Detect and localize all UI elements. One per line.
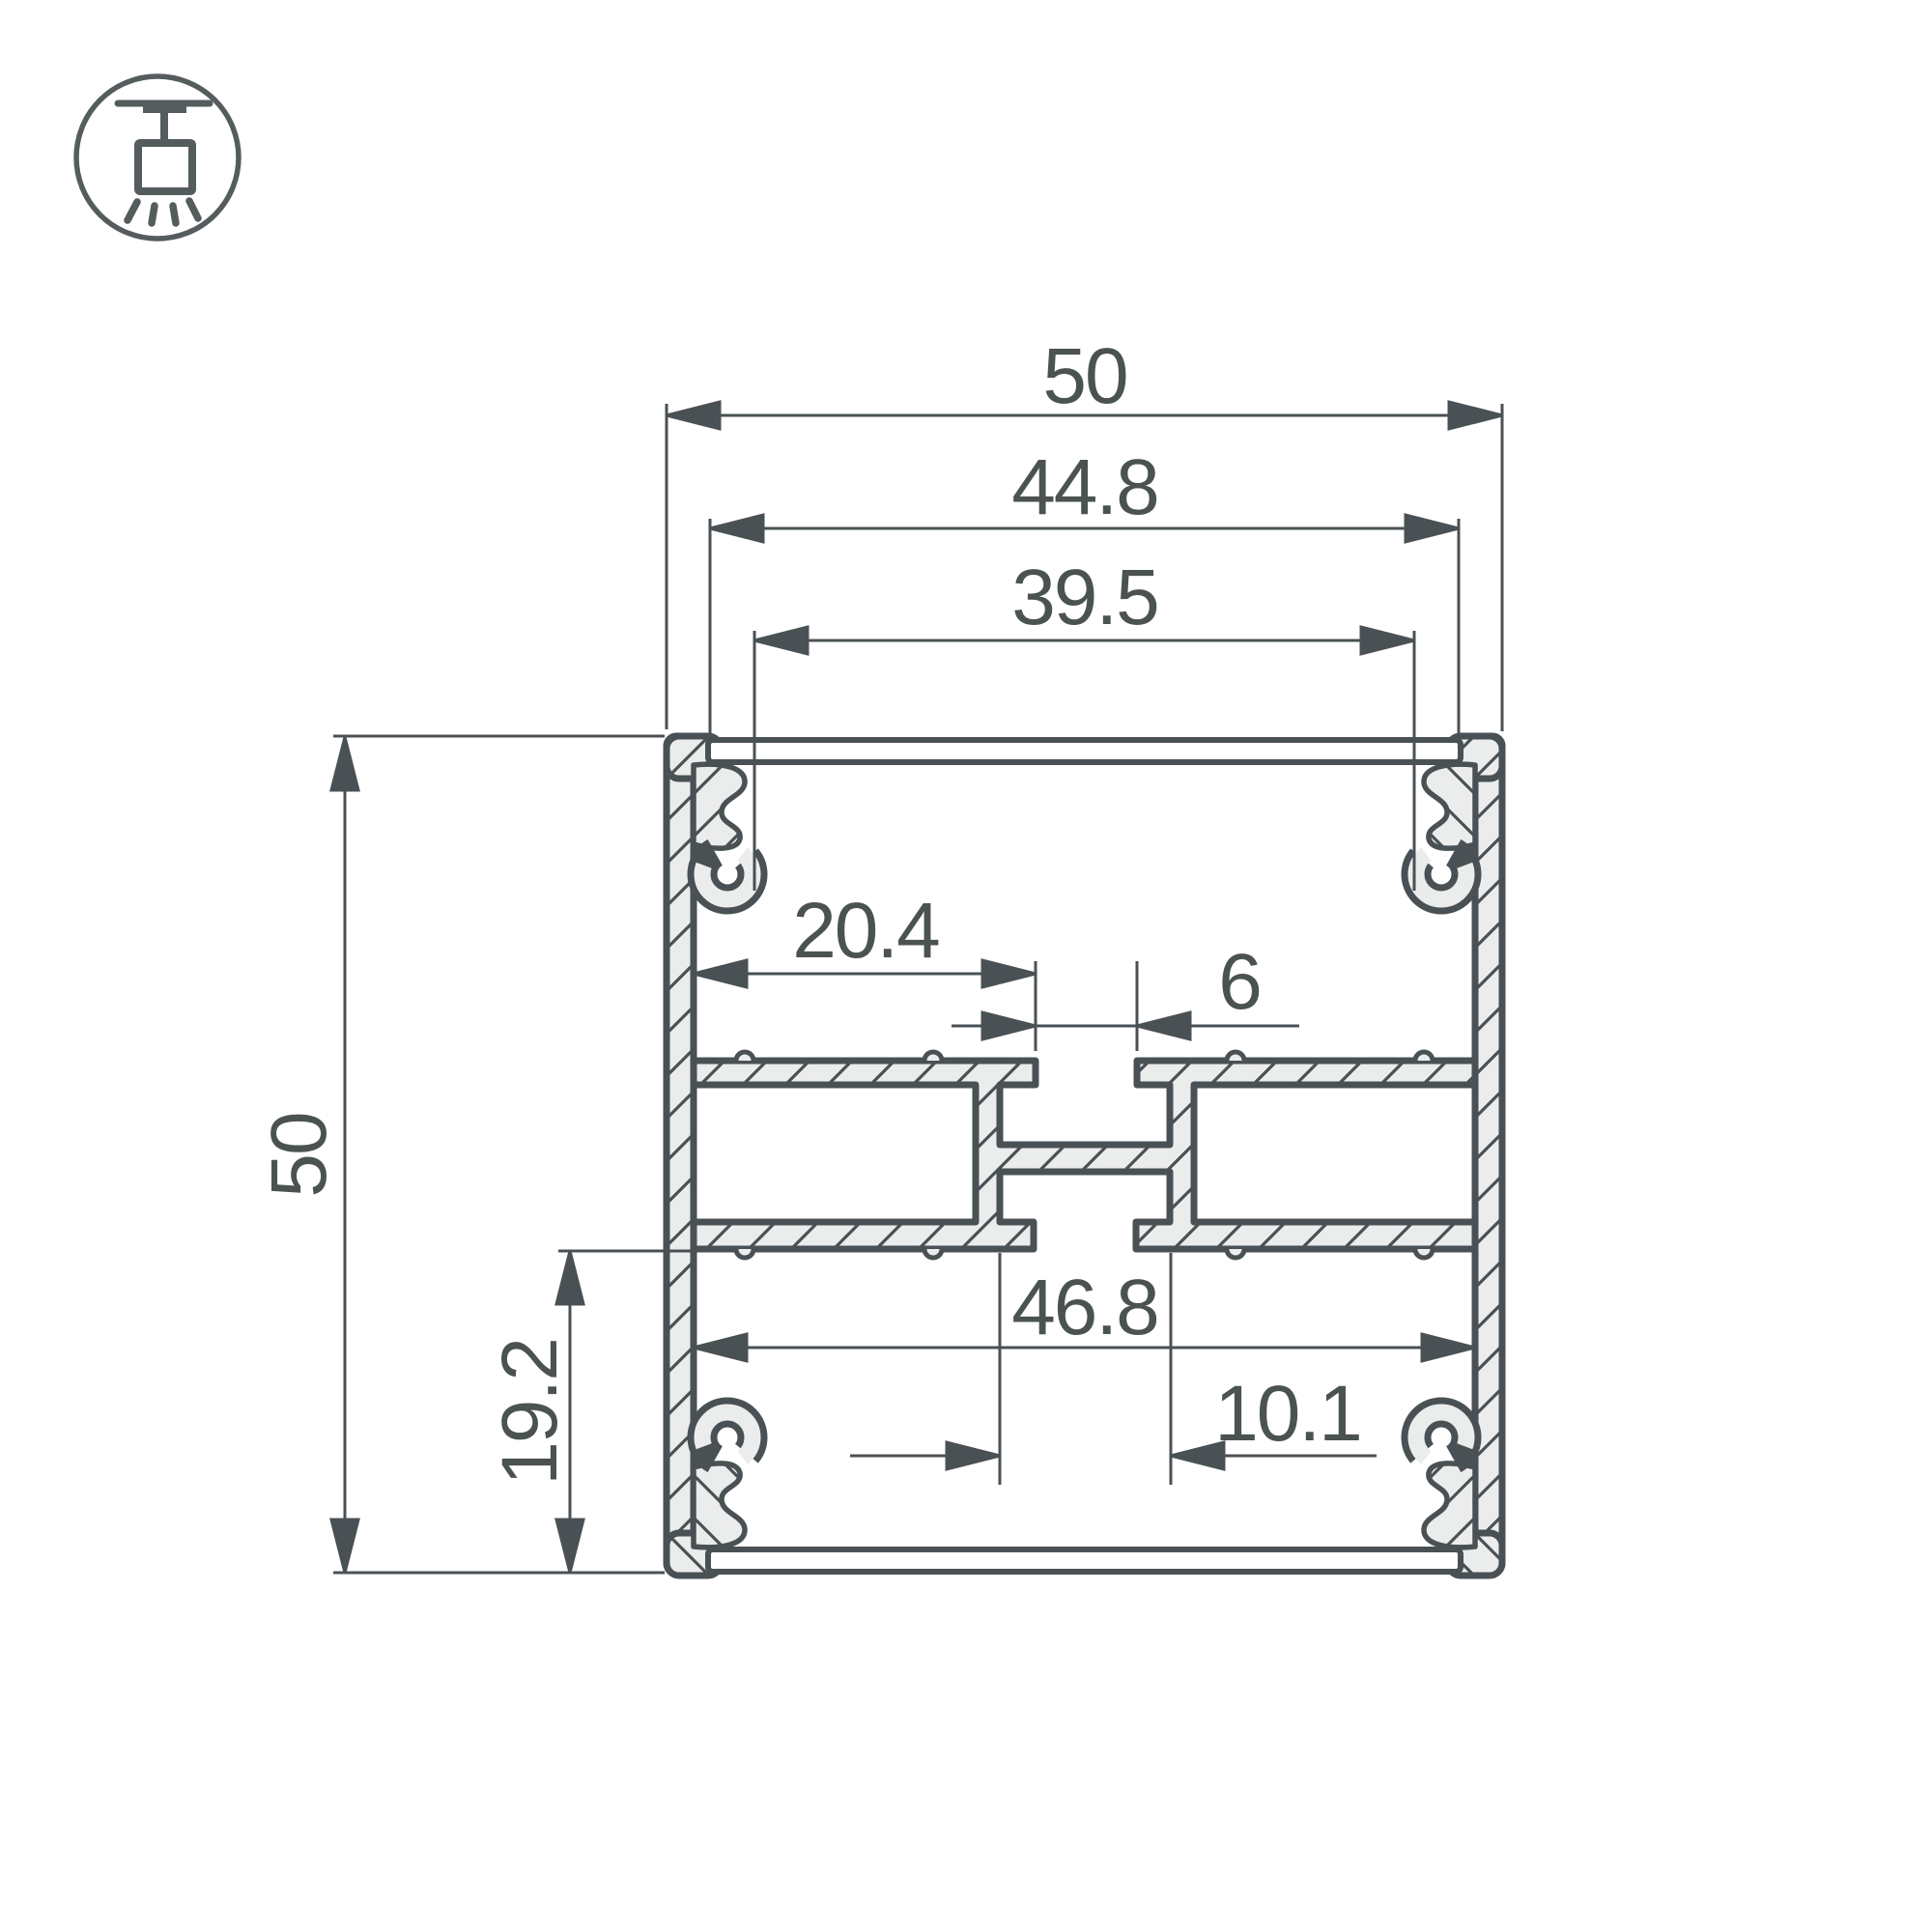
icon-light-rays xyxy=(128,201,198,223)
profile-body xyxy=(667,736,1502,1576)
suspended-luminaire-icon xyxy=(76,76,239,239)
dim-inner-width: 46.8 xyxy=(694,1264,1475,1361)
cover-clip xyxy=(694,764,745,848)
screw-boss xyxy=(1416,849,1466,899)
dim-label-cover-width: 44.8 xyxy=(1011,443,1158,531)
middle-partition-assembly xyxy=(694,1061,1475,1249)
cover-clip xyxy=(1424,764,1475,848)
cover-plate xyxy=(708,740,1461,762)
drawing-page: 50 44.8 39.5 50 xyxy=(0,0,1932,1932)
dim-label-bottom-channel-depth: 19.2 xyxy=(486,1339,574,1486)
dim-label-inner-width: 46.8 xyxy=(1011,1264,1158,1351)
dim-top-slot-width: 6 xyxy=(952,938,1299,1051)
dim-label-top-slot-width: 6 xyxy=(1218,938,1261,1026)
icon-luminaire-box xyxy=(138,143,192,191)
dim-clip-opening-width: 39.5 xyxy=(754,554,1414,891)
top-fittings xyxy=(667,736,1502,899)
dim-label-shelf-width: 20.4 xyxy=(792,887,939,975)
dim-label-bottom-slot-width: 10.1 xyxy=(1214,1370,1361,1458)
dimensions: 50 44.8 39.5 50 xyxy=(255,332,1502,1573)
dim-outer-width: 50 xyxy=(667,332,1502,731)
dim-label-outer-height: 50 xyxy=(255,1113,343,1197)
dim-label-outer-width: 50 xyxy=(1042,332,1126,420)
screw-boss xyxy=(702,849,753,899)
dim-label-clip-opening-width: 39.5 xyxy=(1011,554,1158,641)
bottom-plate xyxy=(708,1549,1461,1572)
dim-outer-height: 50 xyxy=(255,736,665,1573)
bottom-fittings xyxy=(667,1412,1502,1576)
profile-cross-section-drawing: 50 44.8 39.5 50 xyxy=(0,0,1932,1932)
